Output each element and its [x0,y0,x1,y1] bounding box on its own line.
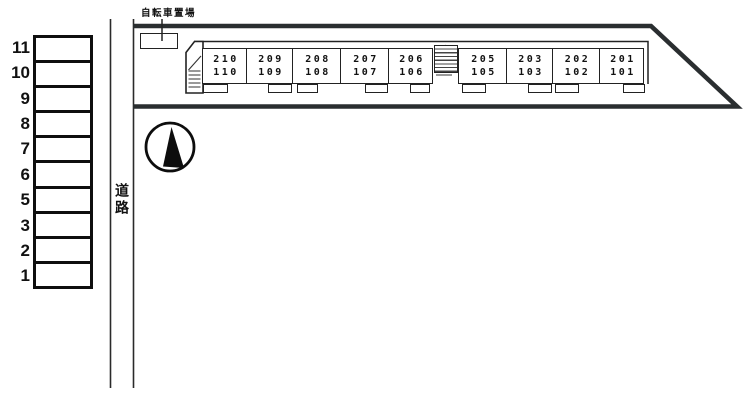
unit-number-upper: 205 [468,53,497,66]
parking-space-number: 6 [2,163,30,187]
porch [555,84,579,93]
parking-space-number: 7 [2,137,30,161]
unit-number-lower: 107 [350,66,379,79]
porch [268,84,292,93]
unit-number-lower: 102 [562,66,591,79]
parking-space [36,85,90,110]
unit-number-upper: 202 [562,53,591,66]
bicycle-parking-area [140,33,178,49]
porch [203,84,228,93]
parking-space [36,60,90,85]
parking-lot [33,35,93,289]
unit-203-103: 203 103 [506,48,553,84]
unit-number-upper: 201 [607,53,636,66]
unit-number-lower: 108 [302,66,331,79]
porch [623,84,645,93]
unit-number-upper: 203 [515,53,544,66]
site-plan-diagram: 11 10 9 8 7 6 5 3 2 1 道路 自転車置場 210 110 2… [0,0,750,400]
stairwell [434,45,458,73]
parking-space-number: 3 [2,214,30,238]
parking-space-number: 11 [2,36,30,60]
porch [462,84,486,93]
unit-number-lower: 101 [607,66,636,79]
road-label: 道路 [110,183,134,217]
unit-202-102: 202 102 [552,48,600,84]
parking-space-number: 9 [2,87,30,111]
unit-number-upper: 206 [396,53,425,66]
unit-number-upper: 207 [350,53,379,66]
parking-space [36,236,90,261]
bicycle-parking-label: 自転車置場 [141,5,196,19]
unit-number-lower: 109 [255,66,284,79]
unit-208-108: 208 108 [292,48,341,84]
stair-tower [186,42,203,94]
parking-space-number: 2 [2,239,30,263]
unit-number-upper: 209 [255,53,284,66]
unit-209-109: 209 109 [246,48,293,84]
parking-space-number: 10 [2,61,30,85]
parking-space [36,38,90,60]
parking-space [36,186,90,211]
unit-number-lower: 105 [468,66,497,79]
unit-number-upper: 210 [210,53,239,66]
unit-207-107: 207 107 [340,48,389,84]
north-arrow-icon [146,123,194,171]
unit-number-lower: 103 [515,66,544,79]
unit-205-105: 205 105 [458,48,507,84]
porch [297,84,318,93]
unit-number-lower: 110 [210,66,239,79]
porch [410,84,430,93]
parking-space [36,211,90,236]
unit-number-upper: 208 [302,53,331,66]
parking-space [36,160,90,185]
parking-space [36,261,90,286]
unit-201-101: 201 101 [599,48,644,84]
parking-space [36,110,90,135]
unit-210-110: 210 110 [202,48,247,84]
porch [528,84,552,93]
parking-space-number: 8 [2,112,30,136]
parking-space-number: 1 [2,264,30,288]
porch [365,84,388,93]
unit-number-lower: 106 [396,66,425,79]
unit-206-106: 206 106 [388,48,433,84]
parking-space [36,135,90,160]
parking-space-number: 5 [2,188,30,212]
